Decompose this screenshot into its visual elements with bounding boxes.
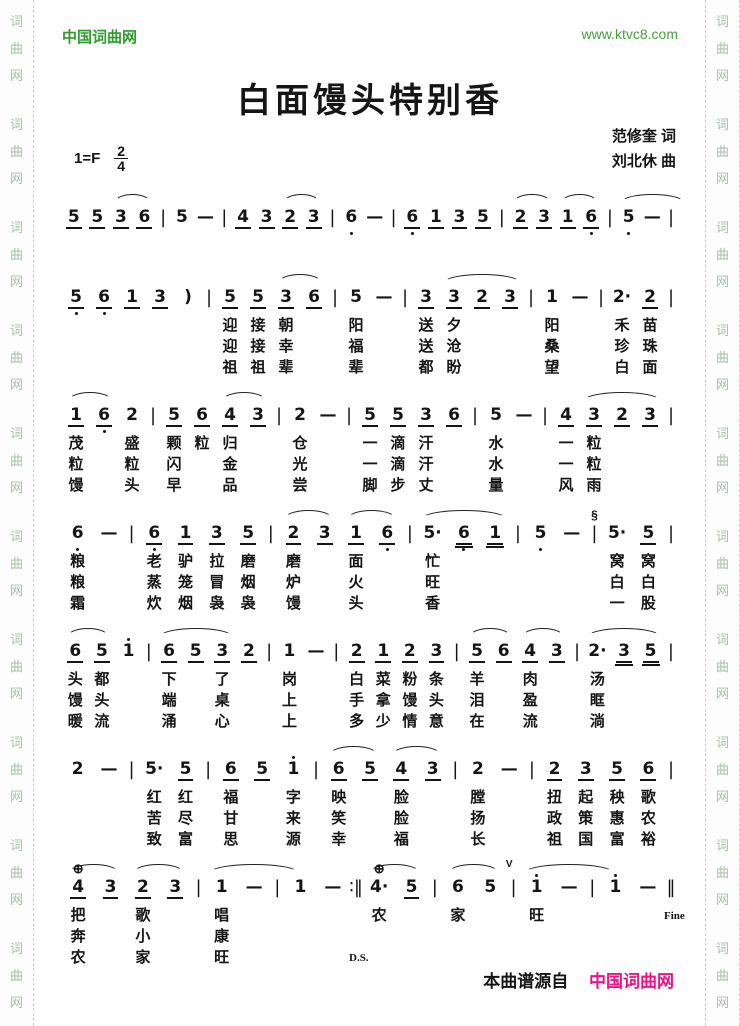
note-column: 1: [118, 270, 146, 379]
above-note-area: [314, 388, 342, 401]
credits: 范修奎 词 刘北休 曲: [612, 124, 676, 174]
lyric-syllable: 滴: [384, 434, 412, 455]
lyric-syllable: 忙: [417, 552, 448, 573]
site-name: 中国词曲网: [62, 26, 137, 47]
note: 6: [404, 208, 420, 229]
above-note-area: [194, 190, 218, 203]
note: —: [364, 208, 385, 227]
above-note-area: [264, 506, 278, 519]
note: —: [374, 288, 395, 307]
note-column: 5颗闪早: [160, 388, 188, 497]
note-column: 3: [496, 270, 524, 379]
note: 3: [536, 208, 552, 229]
note-row: 3: [570, 760, 601, 783]
above-note-area: [354, 742, 385, 755]
system-row: 6粮粮霜—|6老蒸炊1驴笼烟3拉冒袅5磨烟袅|2磨炉馒31面火头6|5·忙旺香6…: [62, 506, 678, 615]
lyric-syllable: [246, 809, 277, 830]
site-url: www.ktvc8.com: [582, 26, 678, 42]
lyric-syllable: [611, 712, 638, 733]
lyric-syllable: 来: [278, 809, 309, 830]
note-column: 2: [62, 742, 93, 851]
segno-icon: §: [591, 508, 598, 522]
lyric-syllable: [511, 594, 525, 615]
lyric-syllable: [490, 670, 517, 691]
lyric-syllable: [115, 712, 142, 733]
note: 3: [209, 524, 225, 545]
above-note-area: [423, 624, 450, 637]
barline: |: [591, 524, 597, 543]
note-row: 1: [284, 878, 316, 901]
music-system: 6头馒暖5都头流1|6下端涌53了桌心2|1岗上上—|2白手多1菜拿少2粉馒情3…: [62, 624, 678, 733]
note-row: 1: [62, 406, 90, 429]
lyric-syllable: [566, 316, 594, 337]
lyric-syllable: [188, 476, 216, 497]
lyric-syllable: 白: [343, 670, 370, 691]
lyric-syllable: [664, 358, 678, 379]
lyric-syllable: [90, 358, 118, 379]
note-row: |: [201, 760, 215, 783]
note-row: 1: [370, 642, 397, 665]
watermark-char: 网: [10, 69, 23, 82]
note: 6: [450, 878, 466, 897]
lyric-syllable: 粒: [62, 455, 90, 476]
note-row: 2: [127, 878, 159, 901]
lyric-syllable: [202, 316, 216, 337]
note-column: 5一一脚: [356, 388, 384, 497]
barline-column: |: [524, 270, 538, 379]
lyric-syllable: 农: [363, 906, 395, 927]
watermark-char: 词: [10, 633, 23, 646]
note-row: |: [309, 760, 323, 783]
note-row: —: [238, 878, 270, 901]
barline: |: [329, 208, 335, 227]
lyric-syllable: 头: [340, 594, 371, 615]
note-row: 5: [62, 288, 90, 311]
lyric-syllable: 了: [209, 670, 236, 691]
note-row: 6: [442, 878, 474, 901]
above-note-area: [160, 388, 188, 401]
lyric-syllable: [525, 788, 539, 809]
above-note-area: [62, 190, 86, 203]
note: 3: [113, 208, 129, 229]
note: 4: [558, 406, 574, 427]
lyric-syllable: 光: [286, 455, 314, 476]
note-row: 3: [146, 288, 174, 311]
above-note-area: [244, 270, 272, 283]
note-row: 6: [300, 288, 328, 311]
above-note-area: [601, 742, 632, 755]
lyric-syllable: 风: [552, 476, 580, 497]
barline-column: ∶‖D.S.: [349, 860, 363, 969]
barline: |: [668, 208, 674, 227]
above-note-area: [216, 270, 244, 283]
note: 2: [402, 642, 418, 663]
above-note-area: [664, 190, 678, 203]
lyric-syllable: [244, 455, 272, 476]
lyric-syllable: [599, 906, 631, 927]
barline-column: |: [262, 624, 276, 733]
lyric-syllable: 惠: [601, 809, 632, 830]
above-note-area: [201, 506, 232, 519]
note-row: 6: [156, 642, 183, 665]
barline-column: |: [594, 270, 608, 379]
note: 5: [533, 524, 549, 543]
lyric-syllable: [125, 809, 139, 830]
note-row: |: [264, 524, 278, 547]
lyric-syllable: [544, 712, 571, 733]
barline-column: |: [428, 860, 442, 969]
note: 3: [425, 760, 441, 781]
note-row: |: [342, 406, 356, 429]
note-column: 3夕沧盼: [440, 270, 468, 379]
note-row: |: [495, 208, 509, 231]
barline-column: |: [664, 624, 678, 733]
lyric-syllable: 阳: [342, 316, 370, 337]
above-note-area: [215, 742, 246, 755]
note-column: 2扭政祖: [539, 742, 570, 851]
note: —: [514, 406, 535, 425]
lyric-syllable: 福: [215, 788, 246, 809]
note-row: 3: [272, 288, 300, 311]
note-row: |: [468, 406, 482, 429]
note-column: 2: [509, 190, 533, 236]
watermark-char: 曲: [10, 557, 23, 570]
note: 3: [642, 406, 658, 427]
lyric-syllable: [525, 809, 539, 830]
barline-column: |: [201, 742, 215, 851]
lyric-syllable: [556, 594, 587, 615]
lyric-syllable: 唱: [206, 906, 238, 927]
above-note-area: [424, 190, 448, 203]
barline: |: [332, 288, 338, 307]
lyric-syllable: [507, 906, 521, 927]
note-column: 5: [354, 742, 385, 851]
note-column: 5滴滴步: [384, 388, 412, 497]
above-note-area: [142, 624, 156, 637]
note-column: 6家: [442, 860, 474, 969]
lyric-syllable: 阳: [538, 316, 566, 337]
note-row: 4: [216, 406, 244, 429]
lyric-syllable: [544, 691, 571, 712]
note-column: 6: [300, 270, 328, 379]
lyric-syllable: [428, 906, 442, 927]
note-column: 6粒: [188, 388, 216, 497]
watermark-char: 网: [10, 790, 23, 803]
note-column: 3: [159, 860, 191, 969]
lyric-syllable: 颗: [160, 434, 188, 455]
lyric-syllable: 白: [608, 358, 636, 379]
note: 6: [194, 406, 210, 427]
above-note-area: [86, 190, 110, 203]
above-note-area: [636, 388, 664, 401]
note-row: |: [125, 524, 139, 547]
lyric-syllable: 珍: [608, 337, 636, 358]
above-note-area: ⊕: [363, 860, 395, 873]
page-header: 中国词曲网 www.ktvc8.com: [62, 0, 678, 47]
note: 2: [124, 406, 140, 425]
lyric-syllable: [125, 552, 139, 573]
lyric-syllable: [636, 455, 664, 476]
note-column: 1字来源: [278, 742, 309, 851]
above-note-area: [633, 506, 664, 519]
lyric-syllable: 富: [601, 830, 632, 851]
coda-icon: ⊕: [73, 861, 84, 876]
note: —: [98, 524, 119, 543]
note-row: |: [585, 878, 599, 901]
lyric-syllable: [448, 594, 479, 615]
lyric-syllable: [570, 691, 584, 712]
lyric-syllable: 尽: [170, 809, 201, 830]
lyric-syllable: 汗: [412, 434, 440, 455]
watermark-char: 网: [716, 275, 729, 288]
note-column: 3: [544, 624, 571, 733]
lyric-syllable: [494, 788, 525, 809]
above-note-area: [664, 860, 678, 873]
lyric-syllable: 头: [89, 691, 116, 712]
lyric-syllable: [372, 594, 403, 615]
note-column: 3: [448, 190, 472, 236]
above-note-area: [328, 270, 342, 283]
watermark-char: 词: [10, 118, 23, 131]
note: 1: [282, 642, 298, 661]
above-note-area: [480, 506, 511, 519]
note-row: 6: [323, 760, 354, 783]
octave-dot-row-below: [363, 231, 387, 236]
lyric-syllable: [300, 337, 328, 358]
octave-dot-row-below: [495, 231, 509, 236]
note-row: 6: [339, 208, 363, 231]
above-note-area: [462, 742, 493, 755]
note-column: 3: [417, 742, 448, 851]
lyric-syllable: 康: [206, 927, 238, 948]
lyric-syllable: [342, 434, 356, 455]
note-row: |: [450, 642, 464, 665]
above-note-area: [340, 506, 371, 519]
note-row: 3: [209, 642, 236, 665]
note-column: 2膛扬长: [462, 742, 493, 851]
lyric-syllable: [303, 670, 330, 691]
lyric-syllable: [192, 927, 206, 948]
lyric-syllable: 磨: [278, 552, 309, 573]
note: —: [244, 878, 265, 897]
note-row: 1: [276, 642, 303, 665]
lyric-syllable: [450, 712, 464, 733]
lyric-syllable: [118, 358, 146, 379]
lyric-syllable: 尝: [286, 476, 314, 497]
note-column: ): [174, 270, 202, 379]
note-row: 5: [471, 208, 495, 231]
above-note-area: [343, 624, 370, 637]
note-row: 4: [386, 760, 417, 783]
note-row: 5: [62, 208, 86, 231]
note-row: 1: [538, 288, 566, 311]
lyric-syllable: 在: [464, 712, 491, 733]
note-column: 2: [278, 190, 302, 236]
note-row: 5: [601, 760, 632, 783]
lyric-syllable: [664, 809, 678, 830]
note-row: —: [317, 878, 349, 901]
note-column: —: [553, 860, 585, 969]
lyric-syllable: [317, 948, 349, 969]
lyric-syllable: [90, 434, 118, 455]
note: 4: [393, 760, 409, 781]
watermark-char: 曲: [716, 660, 729, 673]
note: 3: [429, 642, 445, 663]
above-note-area: [398, 270, 412, 283]
above-note-area: [317, 860, 349, 873]
lyric-syllable: [585, 927, 599, 948]
lyric-syllable: 端: [156, 691, 183, 712]
note: 5: [404, 878, 420, 899]
note-column: 6: [372, 506, 403, 615]
note-row: |: [262, 642, 276, 665]
note-column: 4: [231, 190, 255, 236]
above-note-area: [664, 506, 678, 519]
lyric-syllable: 粮: [62, 573, 93, 594]
lyric-syllable: 条: [423, 670, 450, 691]
above-note-area: [115, 624, 142, 637]
watermark-char: 词: [716, 221, 729, 234]
note-row: 5: [86, 208, 110, 231]
note-row: 1: [170, 524, 201, 547]
note-column: 3: [94, 860, 126, 969]
watermark-char: 词: [716, 942, 729, 955]
lyric-syllable: [448, 809, 462, 830]
note: 3: [418, 406, 434, 427]
above-note-area: [202, 270, 216, 283]
barline-column: |: [495, 190, 509, 236]
lyric-syllable: [118, 316, 146, 337]
lyric-syllable: 脸: [386, 809, 417, 830]
above-note-area: [303, 624, 330, 637]
lyric-syllable: [664, 712, 678, 733]
note-row: |: [524, 288, 538, 311]
lyric-syllable: 起: [570, 788, 601, 809]
lyric-syllable: [480, 594, 511, 615]
lyric-syllable: [417, 809, 448, 830]
lyric-syllable: [142, 712, 156, 733]
lyric-syllable: 流: [89, 712, 116, 733]
lyric-syllable: 一: [356, 434, 384, 455]
lyric-syllable: [317, 906, 349, 927]
above-note-area: [349, 860, 363, 873]
left-watermark-strip: 词曲网词曲网词曲网词曲网词曲网词曲网词曲网词曲网词曲网词曲网词曲网: [0, 0, 34, 1026]
watermark-char: 词: [716, 633, 729, 646]
lyric-syllable: 辈: [342, 358, 370, 379]
note-row: 5: [232, 524, 263, 547]
note: 5: [188, 642, 204, 663]
watermark-char: 词: [716, 530, 729, 543]
lyric-syllable: [599, 948, 631, 969]
above-note-area: [363, 190, 387, 203]
lyric-syllable: 珠: [636, 337, 664, 358]
lyric-syllable: [544, 670, 571, 691]
lyric-syllable: 丈: [412, 476, 440, 497]
lyric-syllable: [329, 712, 343, 733]
above-note-area: [216, 388, 244, 401]
lyric-syllable: [525, 573, 556, 594]
above-note-area: [272, 270, 300, 283]
lyric-syllable: 火: [340, 573, 371, 594]
note: 5: [640, 524, 656, 545]
note: 3: [586, 406, 602, 427]
above-note-area: [448, 506, 479, 519]
lyric-syllable: 笼: [170, 573, 201, 594]
lyric-syllable: [159, 948, 191, 969]
lyric-syllable: [403, 594, 417, 615]
note-row: 6: [215, 760, 246, 783]
octave-dot-row-below: [194, 231, 218, 236]
lyric-syllable: [182, 712, 209, 733]
barline: |: [268, 524, 274, 543]
above-note-area: [494, 742, 525, 755]
lyric-syllable: [398, 337, 412, 358]
watermark-char: 词: [10, 942, 23, 955]
lyric-syllable: [538, 434, 552, 455]
lyric-syllable: 盛: [118, 434, 146, 455]
barline-column: |: [328, 270, 342, 379]
note-column: 1驴笼烟: [170, 506, 201, 615]
watermark-char: 曲: [716, 763, 729, 776]
lyric-syllable: 品: [216, 476, 244, 497]
barline-column: |: [272, 388, 286, 497]
note: 1: [487, 524, 503, 545]
above-note-area: [156, 190, 170, 203]
lyric-syllable: 烟: [232, 573, 263, 594]
note: 6: [96, 288, 112, 309]
note-row: 3: [544, 642, 571, 665]
lyric-syllable: 小: [127, 927, 159, 948]
lyric-syllable: 迎: [216, 337, 244, 358]
note-row: 5: [474, 878, 506, 901]
barline-column: |: [217, 190, 231, 236]
lyric-syllable: [398, 316, 412, 337]
lyric-syllable: [510, 434, 538, 455]
lyric-syllable: 驴: [170, 552, 201, 573]
above-note-area: [524, 270, 538, 283]
note-row: 1: [599, 878, 631, 901]
note-row: 3: [412, 288, 440, 311]
lyric-syllable: 苦: [139, 809, 170, 830]
lyric-syllable: 粉: [397, 670, 424, 691]
note-row: —: [494, 760, 525, 783]
watermark-char: 词: [10, 427, 23, 440]
note-row: ‖: [664, 878, 678, 901]
note-column: 5: [170, 190, 194, 236]
note-row: 5: [170, 208, 194, 231]
above-note-area: [270, 860, 284, 873]
note-row: |: [192, 878, 206, 901]
lyric-syllable: [440, 476, 468, 497]
lyric-syllable: [264, 573, 278, 594]
watermark-char: 词: [10, 736, 23, 749]
note: 6: [70, 524, 86, 543]
octave-dot-row-below: [471, 231, 495, 236]
music-system: 2—|5·红苦致5红尽富|6福甘思51字来源|6映笑幸54脸脸福3|2膛扬长—|…: [62, 742, 678, 851]
barline: |: [452, 760, 458, 779]
note-column: 1: [115, 624, 142, 733]
note-row: 3: [412, 406, 440, 429]
above-note-area: [594, 270, 608, 283]
above-note-area: [580, 388, 608, 401]
barline: |: [589, 878, 595, 897]
lyric-syllable: [599, 927, 631, 948]
above-note-area: [238, 860, 270, 873]
note-row: 2·: [584, 642, 611, 665]
above-note-area: [192, 860, 206, 873]
note-column: —: [494, 742, 525, 851]
lyric-syllable: [236, 691, 263, 712]
